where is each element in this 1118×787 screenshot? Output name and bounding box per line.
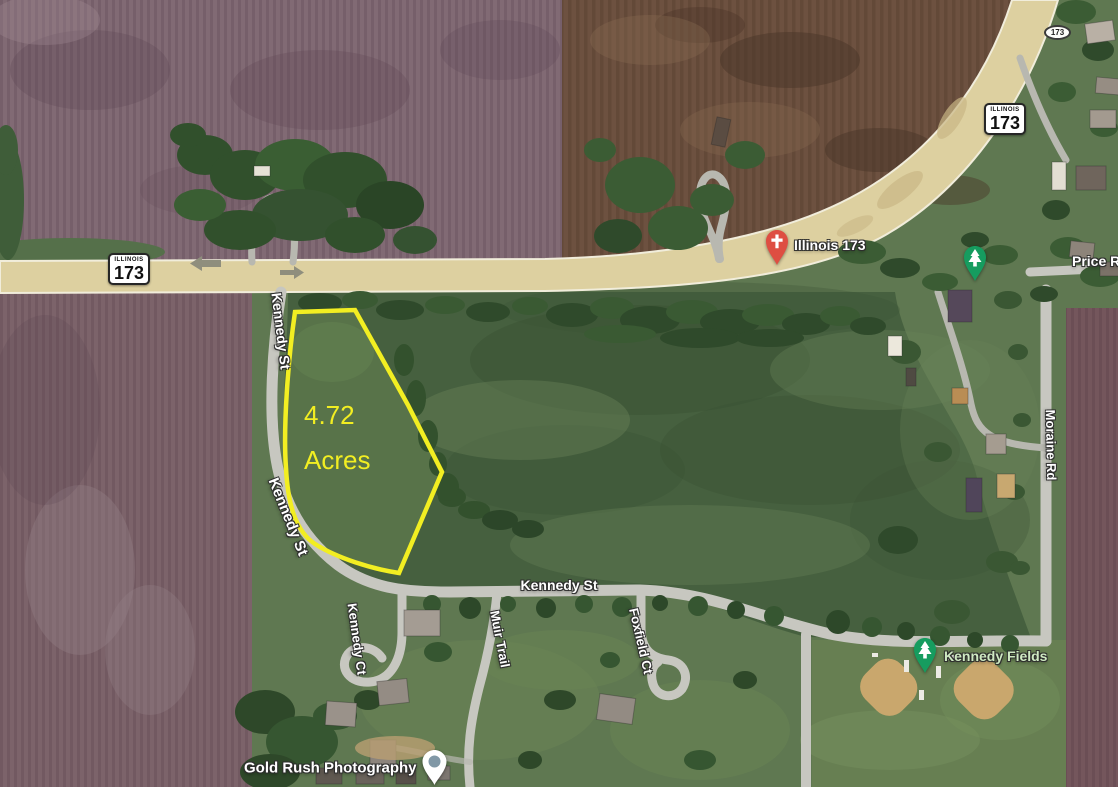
park-pin[interactable]: [960, 244, 990, 282]
parcel-light-patch: [290, 322, 374, 382]
church-pin[interactable]: [762, 228, 792, 266]
shield-route-number: 173: [986, 114, 1024, 132]
satellite-terrain: [0, 0, 1118, 787]
plowed-field-east: [1066, 308, 1118, 787]
satellite-map-canvas[interactable]: 4.72 Acres ILLINOIS 173 ILLINOIS 173 173…: [0, 0, 1118, 787]
route-shield-illinois-173-west: ILLINOIS 173: [108, 253, 150, 285]
route-shield-illinois-173-northeast: ILLINOIS 173: [984, 103, 1026, 135]
shield-route-number: 173: [110, 264, 148, 282]
poi-pin[interactable]: [419, 748, 450, 786]
shield-state-text: ILLINOIS: [110, 257, 148, 263]
route-badge-number: 173: [1051, 28, 1064, 37]
park-pin[interactable]: [910, 636, 940, 674]
route-badge-173: 173: [1044, 25, 1071, 40]
plowed-field-southwest: [0, 292, 252, 787]
shield-state-text: ILLINOIS: [986, 107, 1024, 113]
